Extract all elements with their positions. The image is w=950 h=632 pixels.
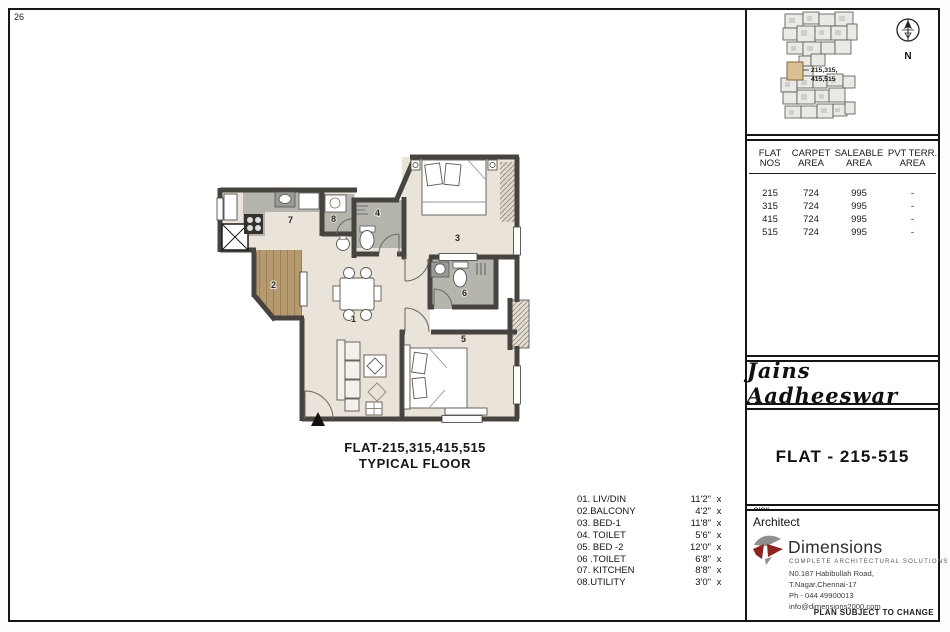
legend-cell: 4'2" <box>671 506 711 518</box>
drawing-sheet-stage: 26 <box>0 0 950 632</box>
architect-box: Architect Dimensions COMPLETE ARCHITECTU… <box>745 509 938 620</box>
architect-tagline: COMPLETE ARCHITECTURAL SOLUTIONS <box>789 558 948 565</box>
table-row: 415724995- <box>749 214 936 226</box>
legend-cell: 3'0" <box>671 577 711 589</box>
legend-cell: x <box>711 518 727 530</box>
north-compass-icon <box>891 14 925 48</box>
footer-note: PLAN SUBJECT TO CHANGE <box>814 608 934 617</box>
legend-cell: 08.UTILITY <box>577 577 671 589</box>
legend-cell: 06 .TOILET <box>577 554 671 566</box>
north-compass: N <box>886 14 930 62</box>
table-cell: 415 <box>749 214 791 226</box>
svg-text:2: 2 <box>271 280 276 290</box>
plan-caption-flats: FLAT-215,315,415,515 <box>275 440 555 455</box>
table-cell: 724 <box>791 201 831 213</box>
architect-brand: Dimensions <box>788 537 882 558</box>
table-row: 315724995- <box>749 201 936 213</box>
svg-text:3: 3 <box>455 233 460 243</box>
svg-text:7: 7 <box>288 215 293 225</box>
area-table-rows: 215724995-315724995-415724995-515724995- <box>749 188 936 239</box>
legend-cell: x <box>711 506 727 518</box>
table-cell: 995 <box>831 201 887 213</box>
legend-cell: 02.BALCONY <box>577 506 671 518</box>
area-table: FLAT NOSCARPET AREASALEABLE AREAPVT TERR… <box>749 145 936 240</box>
bed1-furniture <box>411 160 497 215</box>
svg-text:4: 4 <box>375 208 380 218</box>
table-cell: - <box>887 201 938 213</box>
table-cell: 724 <box>791 214 831 226</box>
table-cell: 995 <box>831 227 887 239</box>
key-plan-unit-label-1: 215,315, <box>811 67 838 74</box>
table-header-cell: SALEABLE AREA <box>831 149 887 170</box>
architect-label: Architect <box>753 515 800 529</box>
table-cell: 995 <box>831 188 887 200</box>
architect-address-line2: T.Nagar,Chennai-17 <box>789 579 881 590</box>
legend-cell: x <box>711 554 727 566</box>
table-cell: 995 <box>831 214 887 226</box>
plan-caption: FLAT-215,315,415,515 TYPICAL FLOOR <box>275 440 555 471</box>
legend-cell: 05. BED -2 <box>577 542 671 554</box>
svg-text:6: 6 <box>462 288 467 298</box>
key-plan-unit-label-2: 415,515 <box>811 76 836 83</box>
table-row: 215724995- <box>749 188 936 200</box>
table-header-cell: FLAT NOS <box>749 149 791 170</box>
table-cell: 724 <box>791 227 831 239</box>
legend-cell: 11'8" <box>671 518 711 530</box>
table-cell: 724 <box>791 188 831 200</box>
key-plan-highlight <box>787 62 803 80</box>
plan-caption-floor: TYPICAL FLOOR <box>275 456 555 471</box>
north-label: N <box>886 51 930 62</box>
legend-cell: x <box>711 565 727 577</box>
area-table-header: FLAT NOSCARPET AREASALEABLE AREAPVT TERR… <box>749 145 936 174</box>
architect-address: N0.187 Habibullah Road, T.Nagar,Chennai-… <box>789 568 881 612</box>
legend-cell: x <box>711 542 727 554</box>
legend-cell: 6'8" <box>671 554 711 566</box>
legend-cell: 5'6" <box>671 530 711 542</box>
area-table-box: FLAT NOSCARPET AREASALEABLE AREAPVT TERR… <box>745 139 938 357</box>
svg-text:1: 1 <box>351 314 356 324</box>
architect-phone: Ph - 044 49900013 <box>789 590 881 601</box>
drawing-sheet: 26 <box>8 8 940 622</box>
table-cell: 315 <box>749 201 791 213</box>
legend-cell: 04. TOILET <box>577 530 671 542</box>
project-name: Jains Aadheeswar <box>747 358 938 408</box>
flat-title-box: FLAT - 215-515 <box>745 408 938 506</box>
legend-cell: 12'0" <box>671 542 711 554</box>
room-legend: 01. LIV/DIN11'2"x19'8"02.BALCONY4'2"x8'0… <box>577 494 769 589</box>
table-header-cell: CARPET AREA <box>791 149 831 170</box>
table-cell: 515 <box>749 227 791 239</box>
flat-title: FLAT - 215-515 <box>776 447 910 467</box>
table-cell: - <box>887 227 938 239</box>
legend-cell: 03. BED-1 <box>577 518 671 530</box>
legend-cell: 8'8" <box>671 565 711 577</box>
table-header-cell: PVT TERR. AREA <box>887 149 938 170</box>
dimensions-logo-icon <box>751 533 787 567</box>
architect-address-line1: N0.187 Habibullah Road, <box>789 568 881 579</box>
legend-cell: 01. LIV/DIN <box>577 494 671 506</box>
table-row: 515724995- <box>749 227 936 239</box>
svg-text:8: 8 <box>331 214 336 224</box>
legend-cell: 07. KITCHEN <box>577 565 671 577</box>
sheet-number: 26 <box>14 12 24 22</box>
table-cell: - <box>887 214 938 226</box>
legend-cell: 11'2" <box>671 494 711 506</box>
legend-cell: x <box>711 494 727 506</box>
legend-cell: x <box>711 577 727 589</box>
project-name-box: Jains Aadheeswar <box>745 360 938 405</box>
svg-text:5: 5 <box>461 334 466 344</box>
table-cell: 215 <box>749 188 791 200</box>
table-cell: - <box>887 188 938 200</box>
key-plan-box: 215,315, 415,515 N <box>745 10 938 136</box>
floor-plan: 1 2 3 4 5 6 7 8 <box>207 142 547 432</box>
legend-cell: x <box>711 530 727 542</box>
